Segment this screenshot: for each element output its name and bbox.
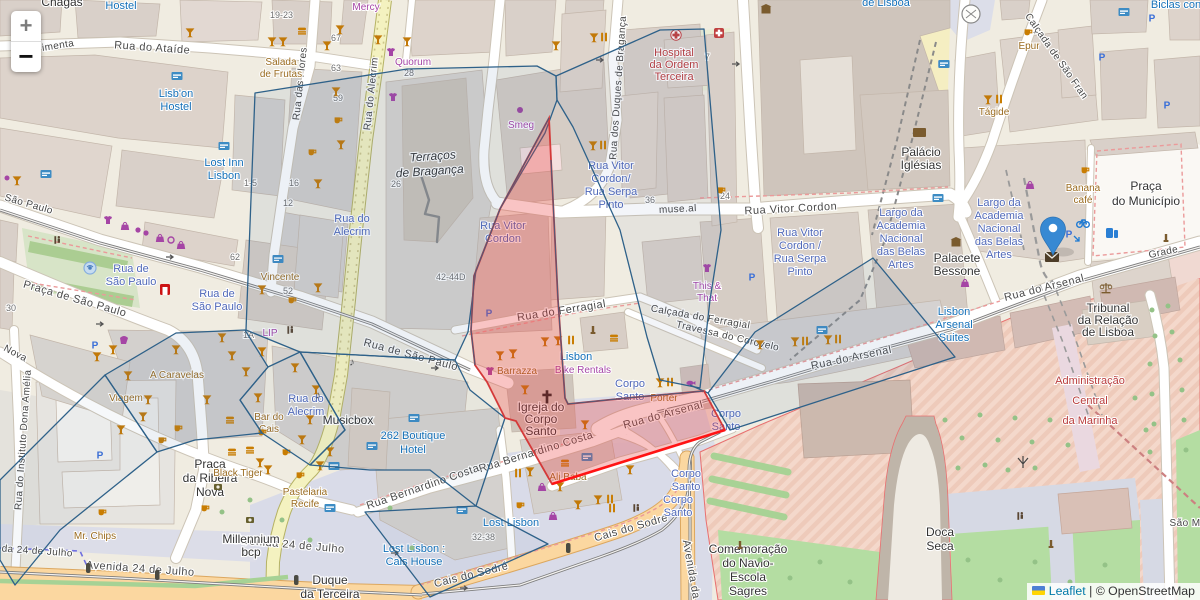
svg-text:de Frutas: de Frutas (260, 69, 302, 80)
svg-text:Recife: Recife (291, 499, 320, 510)
svg-text:São M: São M (1170, 518, 1200, 529)
svg-text:Rua Serpa: Rua Serpa (774, 253, 827, 265)
svg-text:Doca: Doca (926, 525, 954, 539)
svg-text:62: 62 (230, 252, 240, 262)
svg-text:Corpo: Corpo (615, 378, 645, 390)
svg-text:Lost Inn: Lost Inn (204, 157, 243, 169)
svg-text:Praça: Praça (1130, 179, 1162, 193)
svg-text:Artes: Artes (888, 259, 914, 271)
svg-text:de Lisboa: de Lisboa (1082, 325, 1134, 339)
svg-text:Quorum: Quorum (395, 57, 431, 68)
svg-text:Palacete: Palacete (934, 251, 981, 265)
svg-text:Millennium: Millennium (222, 532, 279, 546)
svg-text:Banana: Banana (1066, 183, 1101, 194)
svg-text:da Marinha: da Marinha (1062, 415, 1118, 427)
svg-text:Artes: Artes (986, 249, 1012, 261)
svg-text:Iglésias: Iglésias (901, 158, 942, 172)
svg-text:Comemoração: Comemoração (709, 542, 788, 556)
svg-text:Rua Vitor: Rua Vitor (777, 227, 823, 239)
svg-text:da Terceira: da Terceira (300, 587, 359, 600)
svg-text:Rua de: Rua de (113, 263, 148, 275)
svg-text:Pastelaria: Pastelaria (283, 487, 328, 498)
svg-text:Central: Central (1072, 395, 1107, 407)
svg-text:Mercy: Mercy (352, 2, 379, 13)
svg-text:Hostel: Hostel (160, 101, 191, 113)
svg-text:Black Tiger: Black Tiger (213, 468, 263, 479)
svg-text:bcp: bcp (241, 545, 261, 559)
svg-text:Santo: Santo (672, 481, 701, 493)
svg-text:Lisb'on: Lisb'on (159, 88, 194, 100)
svg-text:Escola: Escola (730, 570, 766, 584)
svg-text:Tágide: Tágide (979, 107, 1010, 118)
svg-text:Rua de: Rua de (199, 288, 234, 300)
svg-text:São Paulo: São Paulo (192, 301, 243, 313)
svg-text:Nacional: Nacional (978, 223, 1021, 235)
svg-text:de Lisboa: de Lisboa (862, 0, 911, 9)
svg-text:Arsenal: Arsenal (935, 319, 972, 331)
svg-text:Palácio: Palácio (901, 145, 941, 159)
svg-text:Pinto: Pinto (787, 266, 812, 278)
svg-text:Lisbon: Lisbon (208, 170, 240, 182)
svg-text:Corpo: Corpo (671, 468, 701, 480)
svg-text:19-23: 19-23 (270, 10, 293, 20)
svg-text:Largo da: Largo da (879, 207, 923, 219)
svg-text:Academia: Academia (877, 220, 927, 232)
svg-text:das Belas: das Belas (877, 246, 926, 258)
svg-text:67: 67 (331, 33, 341, 43)
svg-text:São Paulo: São Paulo (106, 276, 157, 288)
svg-text:Seca: Seca (926, 539, 954, 553)
svg-text:Duque: Duque (312, 573, 348, 587)
svg-text:Administração: Administração (1055, 375, 1125, 387)
svg-text:Academia: Academia (975, 210, 1025, 222)
svg-text:Lisbon: Lisbon (938, 306, 970, 318)
svg-text:30: 30 (6, 303, 16, 313)
svg-text:Biclas con: Biclas con (1151, 0, 1200, 11)
svg-text:Cordon /: Cordon / (779, 240, 822, 252)
svg-text:Chagas: Chagas (41, 0, 82, 9)
svg-text:Santo: Santo (664, 507, 693, 519)
svg-text:café: café (1074, 195, 1093, 206)
svg-text:Corpo: Corpo (663, 494, 693, 506)
svg-text:Hostel: Hostel (105, 0, 136, 12)
svg-text:do Município: do Município (1112, 194, 1180, 208)
svg-text:Bessone: Bessone (934, 264, 981, 278)
svg-text:do Navio-: do Navio- (722, 556, 773, 570)
svg-text:Mr. Chips: Mr. Chips (74, 531, 116, 542)
svg-text:Salada: Salada (265, 57, 297, 68)
svg-text:Sagres: Sagres (729, 584, 767, 598)
svg-text:das Belas: das Belas (975, 236, 1024, 248)
svg-text:Lisbon: Lisbon (560, 351, 592, 363)
svg-text:Epur: Epur (1018, 41, 1040, 52)
svg-text:Nacional: Nacional (880, 233, 923, 245)
svg-text:Largo da: Largo da (977, 197, 1021, 209)
svg-text:63: 63 (331, 63, 341, 73)
